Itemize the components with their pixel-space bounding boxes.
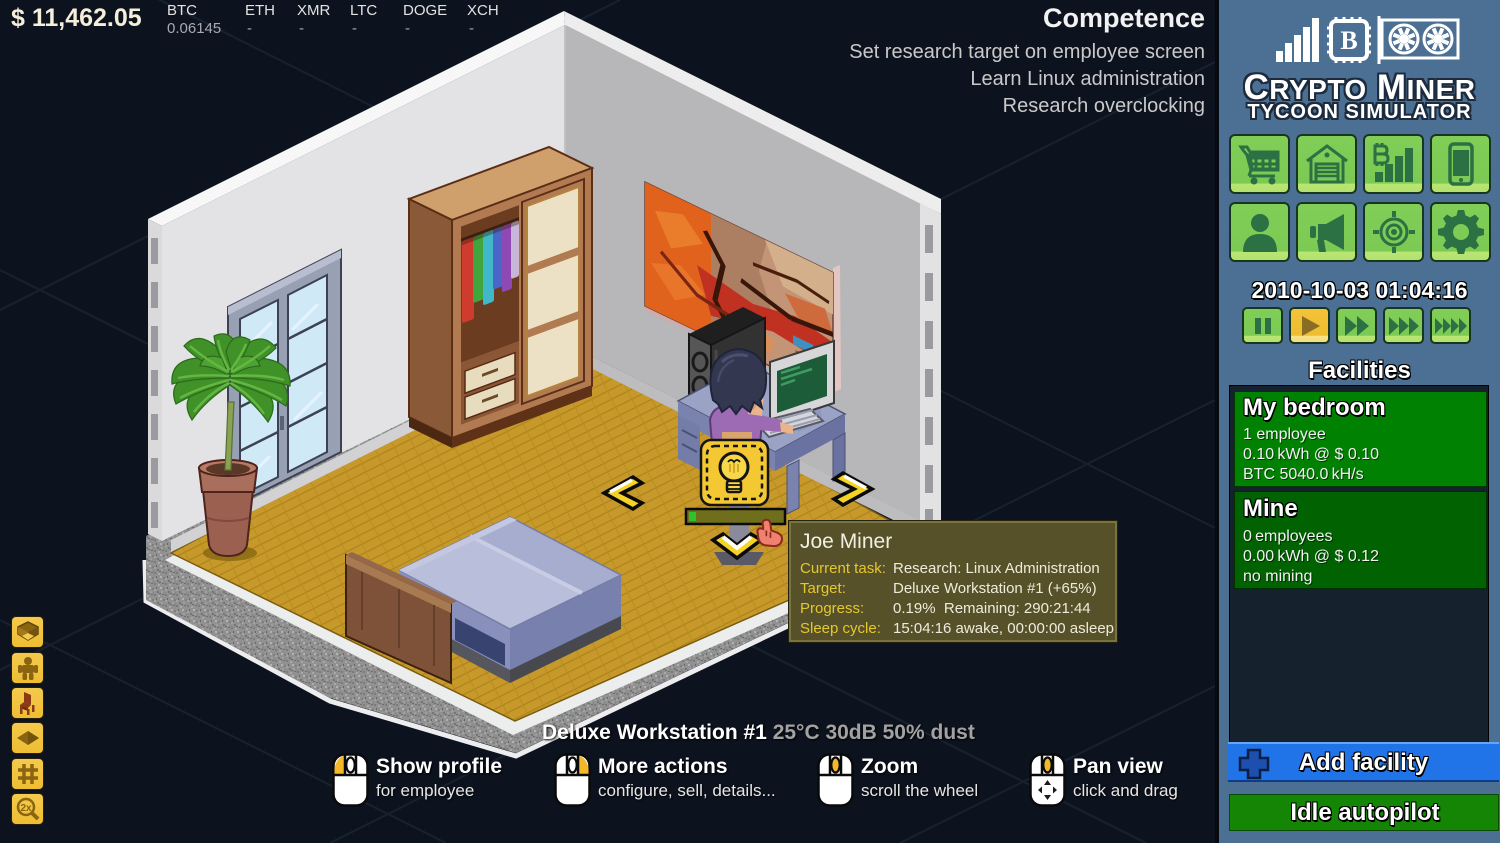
svg-text:2x: 2x bbox=[20, 803, 32, 814]
svg-text:B: B bbox=[1340, 26, 1357, 55]
